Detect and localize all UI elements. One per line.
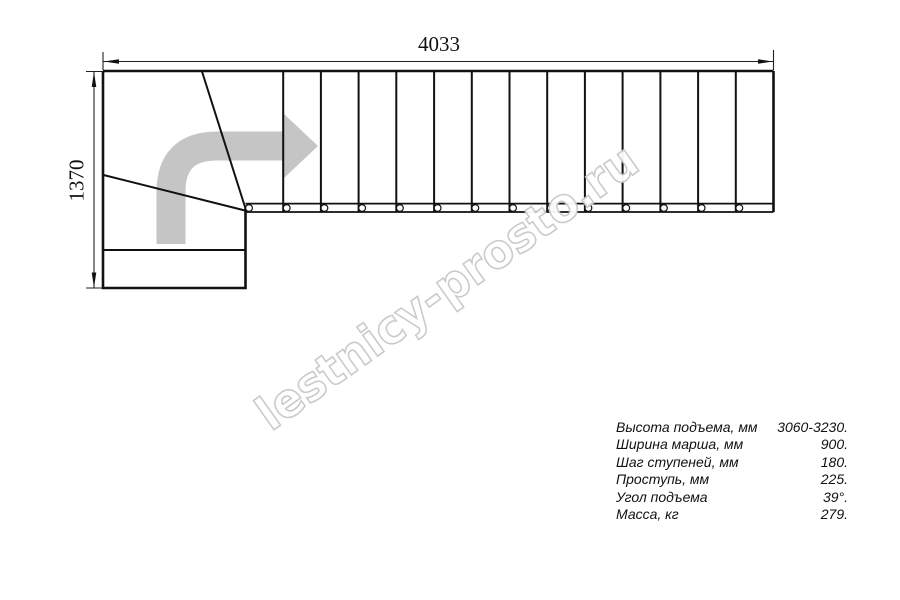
straight-step-lines	[283, 71, 736, 212]
dimension-arrowheads	[92, 59, 773, 287]
stair-plan-drawing: lestnicy-prosto.ru 4033 1370 Высота подъ…	[0, 0, 900, 600]
spec-value: 225.	[821, 471, 848, 488]
height-dimension-label: 1370	[65, 131, 90, 231]
spec-value: 39°.	[823, 489, 848, 506]
spec-table: Высота подъема, мм 3060-3230. Ширина мар…	[616, 419, 848, 523]
spec-value: 3060-3230.	[777, 419, 848, 436]
spec-row: Ширина марша, мм 900.	[616, 436, 848, 453]
spec-label: Высота подъема, мм	[616, 419, 758, 436]
spec-label: Шаг ступеней, мм	[616, 454, 739, 471]
spec-row: Масса, кг 279.	[616, 506, 848, 523]
spec-label: Угол подъема	[616, 489, 708, 506]
width-dimension-label: 4033	[389, 32, 489, 57]
spec-label: Масса, кг	[616, 506, 679, 523]
spec-label: Проступь, мм	[616, 471, 709, 488]
plan-outline	[103, 71, 774, 288]
spec-row: Проступь, мм 225.	[616, 471, 848, 488]
spec-row: Угол подъема 39°.	[616, 489, 848, 506]
spec-value: 180.	[821, 454, 848, 471]
spec-value: 900.	[821, 436, 848, 453]
spec-label: Ширина марша, мм	[616, 436, 743, 453]
spec-value: 279.	[821, 506, 848, 523]
spec-row: Высота подъема, мм 3060-3230.	[616, 419, 848, 436]
spec-row: Шаг ступеней, мм 180.	[616, 454, 848, 471]
watermark: lestnicy-prosto.ru	[246, 133, 649, 441]
